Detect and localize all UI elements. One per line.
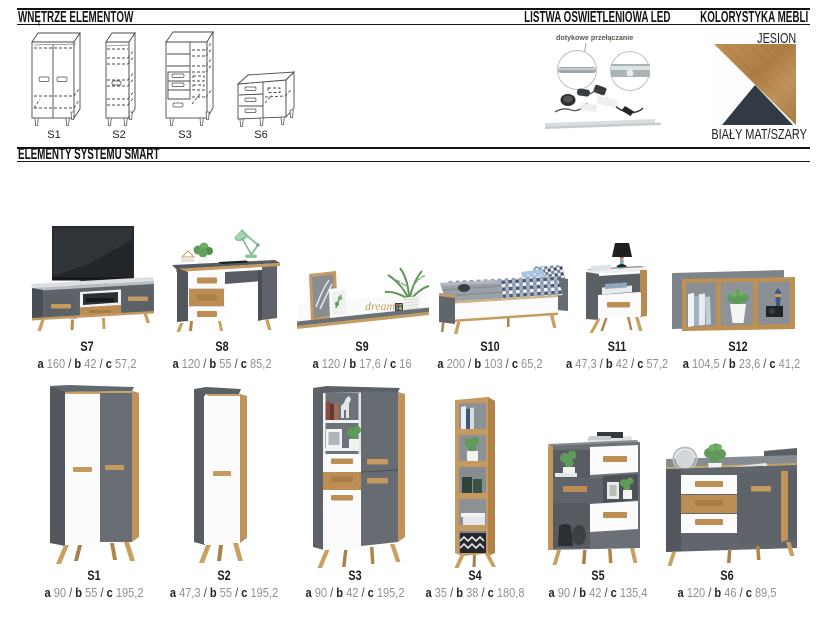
svg-text:S2: S2	[112, 129, 125, 141]
svg-text:S6: S6	[254, 129, 267, 141]
svg-text:dream: dream	[365, 299, 396, 313]
svg-text:S1: S1	[47, 129, 60, 141]
svg-text:S3: S3	[178, 129, 191, 141]
